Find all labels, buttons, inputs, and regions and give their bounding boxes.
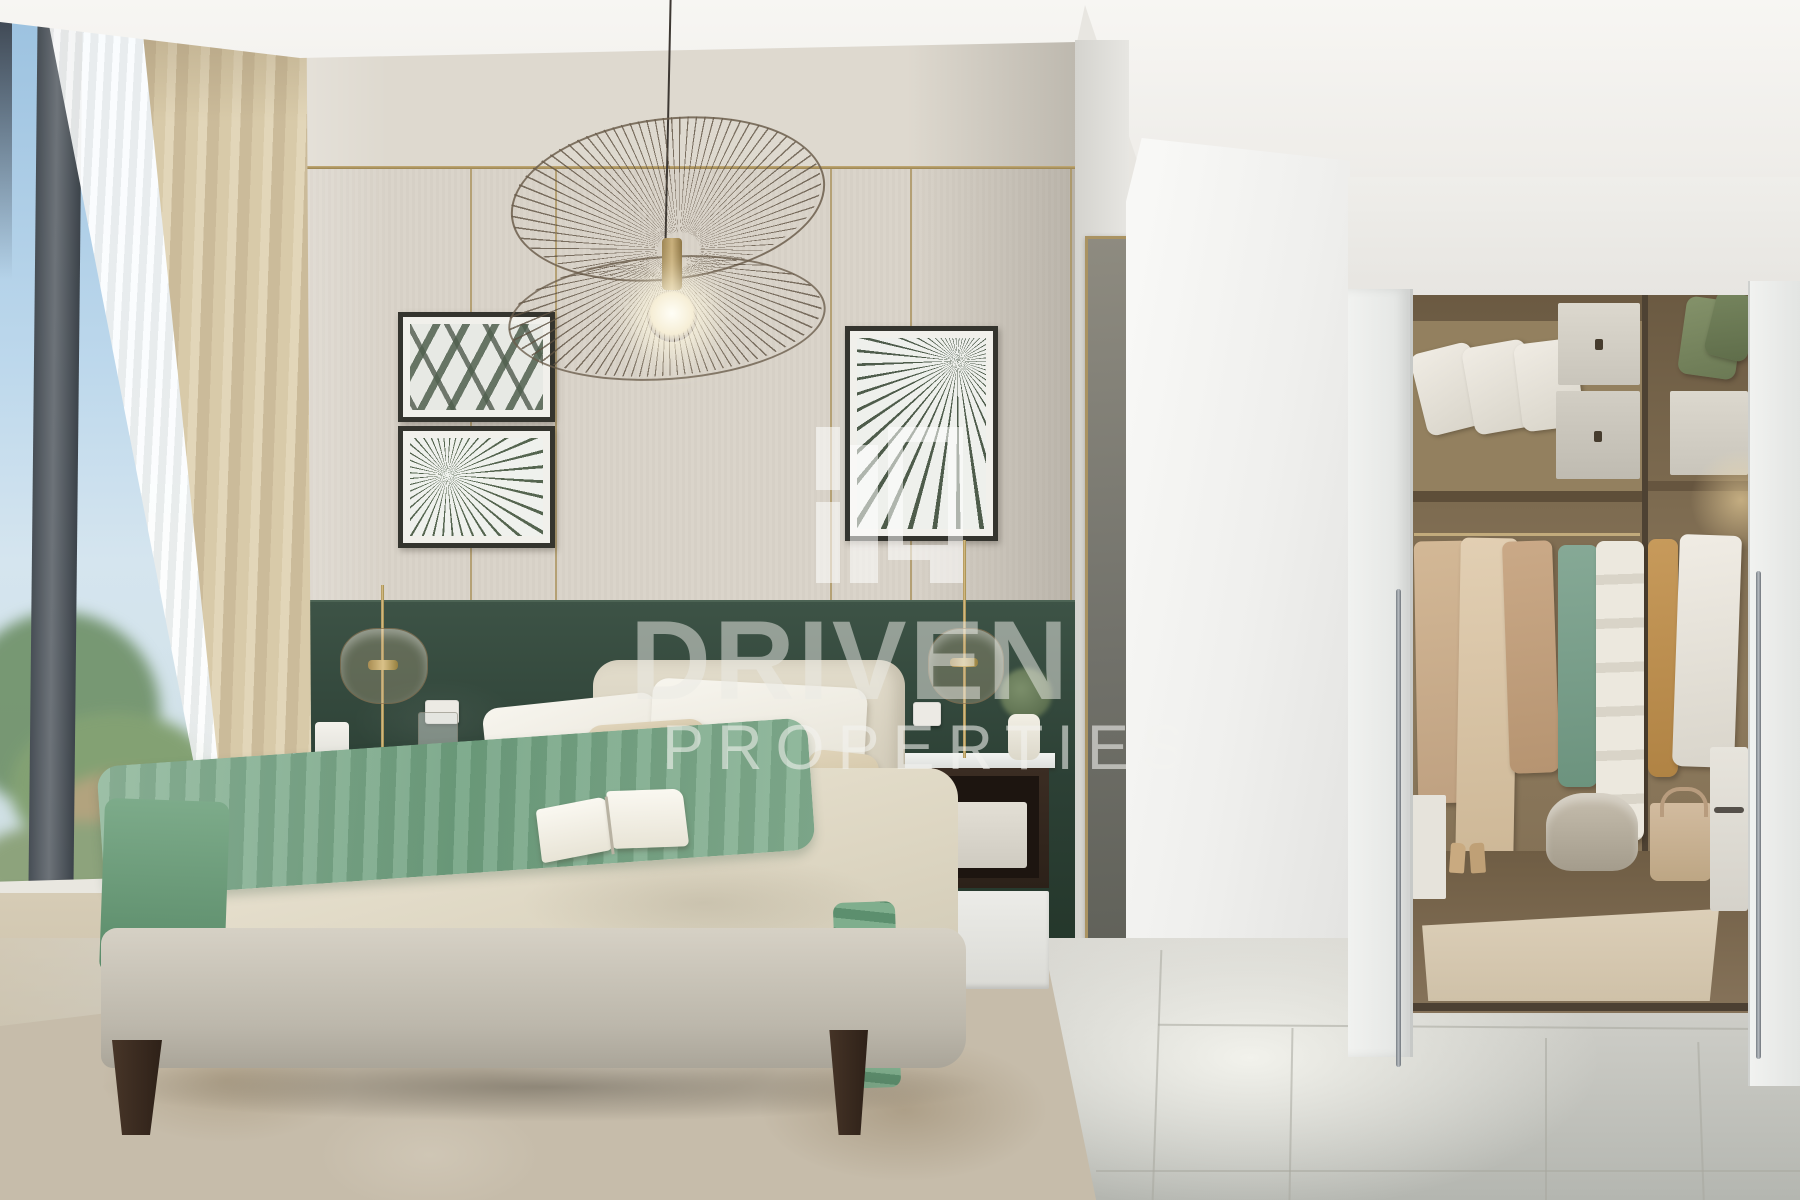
table-lamp-right-fitting [950,658,978,667]
gold-framed-mirror [1085,236,1131,996]
closet-upper-wall [1348,177,1800,295]
closet-hanging-rod [1414,533,1640,536]
tote-bag-handle [1660,787,1708,817]
art-mat [403,431,550,543]
wall-art-frame-bottom-left [398,426,555,548]
storage-box [1558,303,1640,385]
white-vase [1008,714,1040,760]
closet-floor-box [1412,795,1446,899]
vase-greenery [1000,668,1052,720]
light-switch-right [913,702,941,726]
book-page-right [606,789,689,849]
drawer-notch [1714,807,1744,813]
book-page-left [536,796,613,863]
fan-palm-print-tall [857,338,986,529]
closet-threshold [1410,1003,1748,1011]
door-handle-left [1396,589,1401,1067]
closet-drawer-unit [1710,747,1748,911]
art-mat [850,331,993,536]
table-lamp-left-fitting [368,660,398,670]
box-handle-hole [1595,339,1603,350]
closet-shelf [1410,491,1646,502]
window-frame-left-edge [0,0,12,280]
box-handle-hole [1594,431,1602,442]
wall-art-frame-right [845,326,998,541]
sliding-door-right [1748,281,1800,1086]
walk-in-closet [1348,177,1800,1097]
pendant-bulb-glow [647,290,697,342]
high-heel-shoe [1449,843,1466,874]
fan-palm-print [410,438,543,536]
door-handle-right [1756,571,1761,1059]
high-heel-shoe [1469,843,1486,874]
hanging-garment-white-shirt [1672,534,1742,768]
closet-opening [1410,295,1748,1013]
pendant-gold-hub [662,238,682,290]
white-partition-wall [1126,138,1350,1046]
property-photo: DRIVEN PROPERTIES [0,0,1800,1200]
sliding-door-left [1348,289,1413,1057]
storage-box [1556,391,1640,479]
hanging-garment-teal-dress [1558,545,1598,787]
tile-grout-line [1096,1170,1800,1172]
storage-basket [1546,793,1638,871]
hanging-garment-tan [1502,540,1560,774]
